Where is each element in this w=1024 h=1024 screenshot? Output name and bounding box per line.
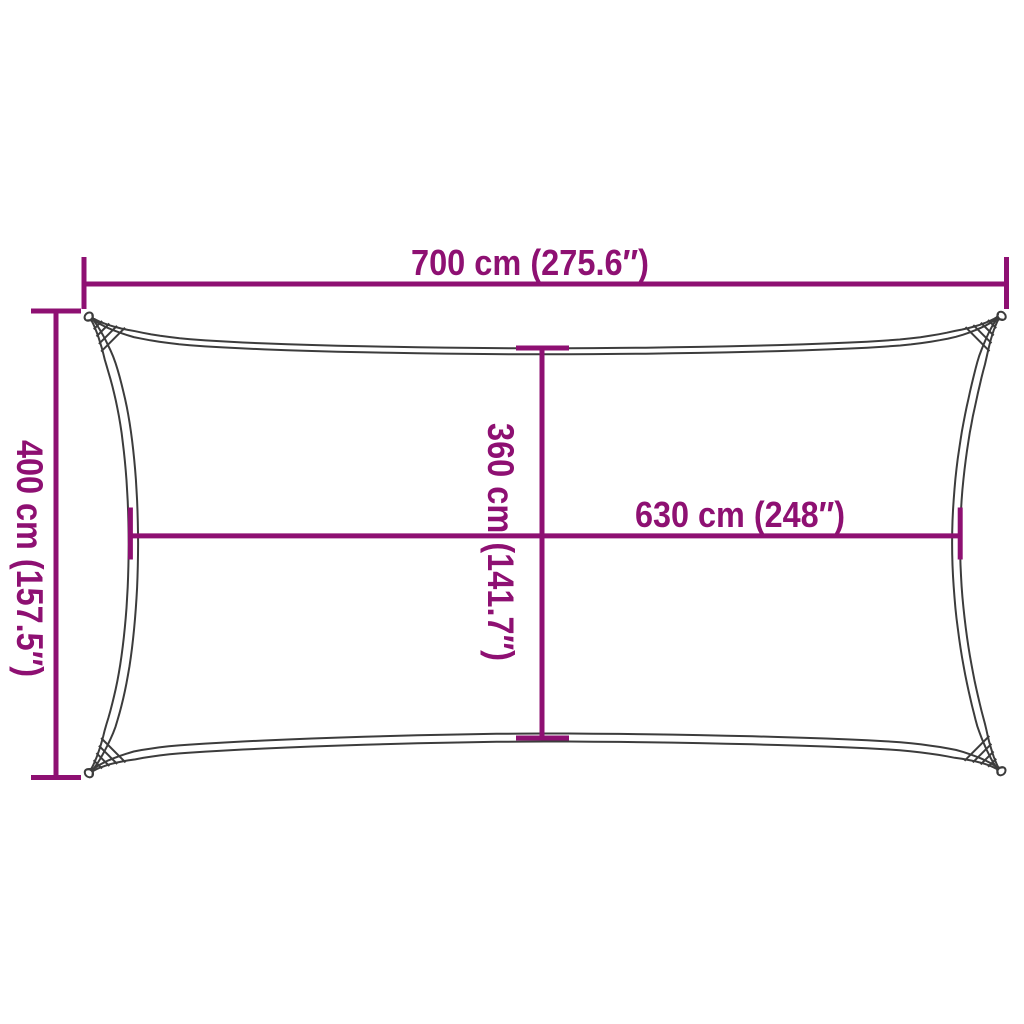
svg-text:630 cm (248″): 630 cm (248″) [635, 494, 845, 535]
svg-text:360 cm (141.7″): 360 cm (141.7″) [480, 423, 521, 661]
svg-text:700 cm (275.6″): 700 cm (275.6″) [411, 242, 649, 283]
svg-text:400 cm (157.5″): 400 cm (157.5″) [9, 440, 50, 677]
